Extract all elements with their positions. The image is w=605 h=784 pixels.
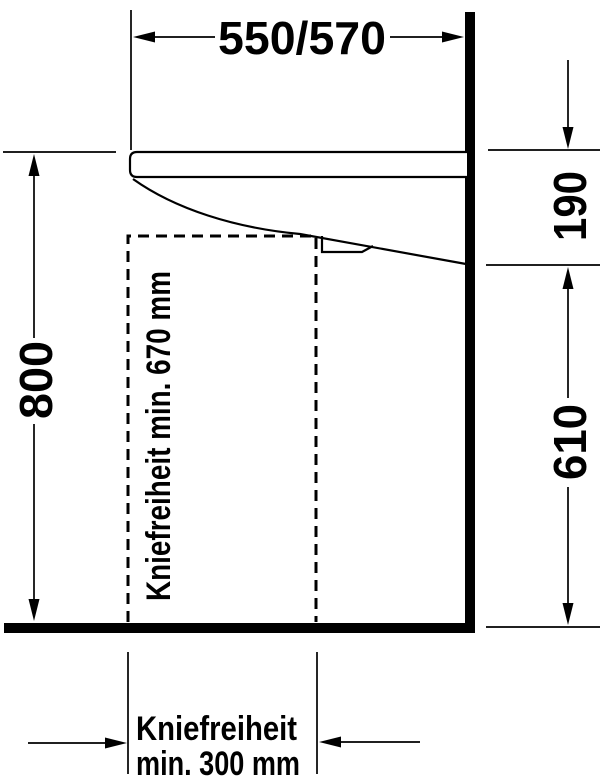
dimension-top-width: 550/570 [131,10,464,150]
arrowhead-down-icon [29,599,40,621]
knee-width-label-line2: min. 300 mm [136,745,300,783]
dim-label-right-height: 610 [544,404,596,480]
wall-section-line [465,12,475,633]
dimension-left-height: 800 [3,152,116,621]
drawing-canvas: 550/570 800 190 610 Kniefreiheit min. 67… [0,0,605,784]
basin-rim-slab [130,152,467,177]
basin-underside-curve [133,179,466,264]
arrowhead-left-icon [319,737,341,748]
arrowhead-down-icon [563,603,574,625]
dimension-right-depth: 190 [486,60,600,265]
dimension-knee-width: Kniefreiheit min. 300 mm [28,652,420,783]
arrowhead-up-icon [29,154,40,176]
dim-label-right-depth: 190 [544,171,596,241]
knee-clearance-depth-label: Kniefreiheit min. 670 mm [140,271,178,601]
knee-width-label-line1: Kniefreiheit [136,710,297,748]
arrowhead-left-icon [133,32,155,43]
washbasin-profile [130,152,467,264]
arrowhead-down-icon [563,127,574,149]
dim-label-top-width: 550/570 [218,12,386,64]
arrowhead-up-icon [563,267,574,289]
dimension-right-height: 610 [486,267,600,627]
arrowhead-right-icon [105,738,127,749]
dim-label-left-height: 800 [10,341,62,419]
arrowhead-right-icon [442,32,464,43]
washbasin-dimension-drawing: 550/570 800 190 610 Kniefreiheit min. 67… [0,0,605,784]
floor-section-line [4,623,475,633]
